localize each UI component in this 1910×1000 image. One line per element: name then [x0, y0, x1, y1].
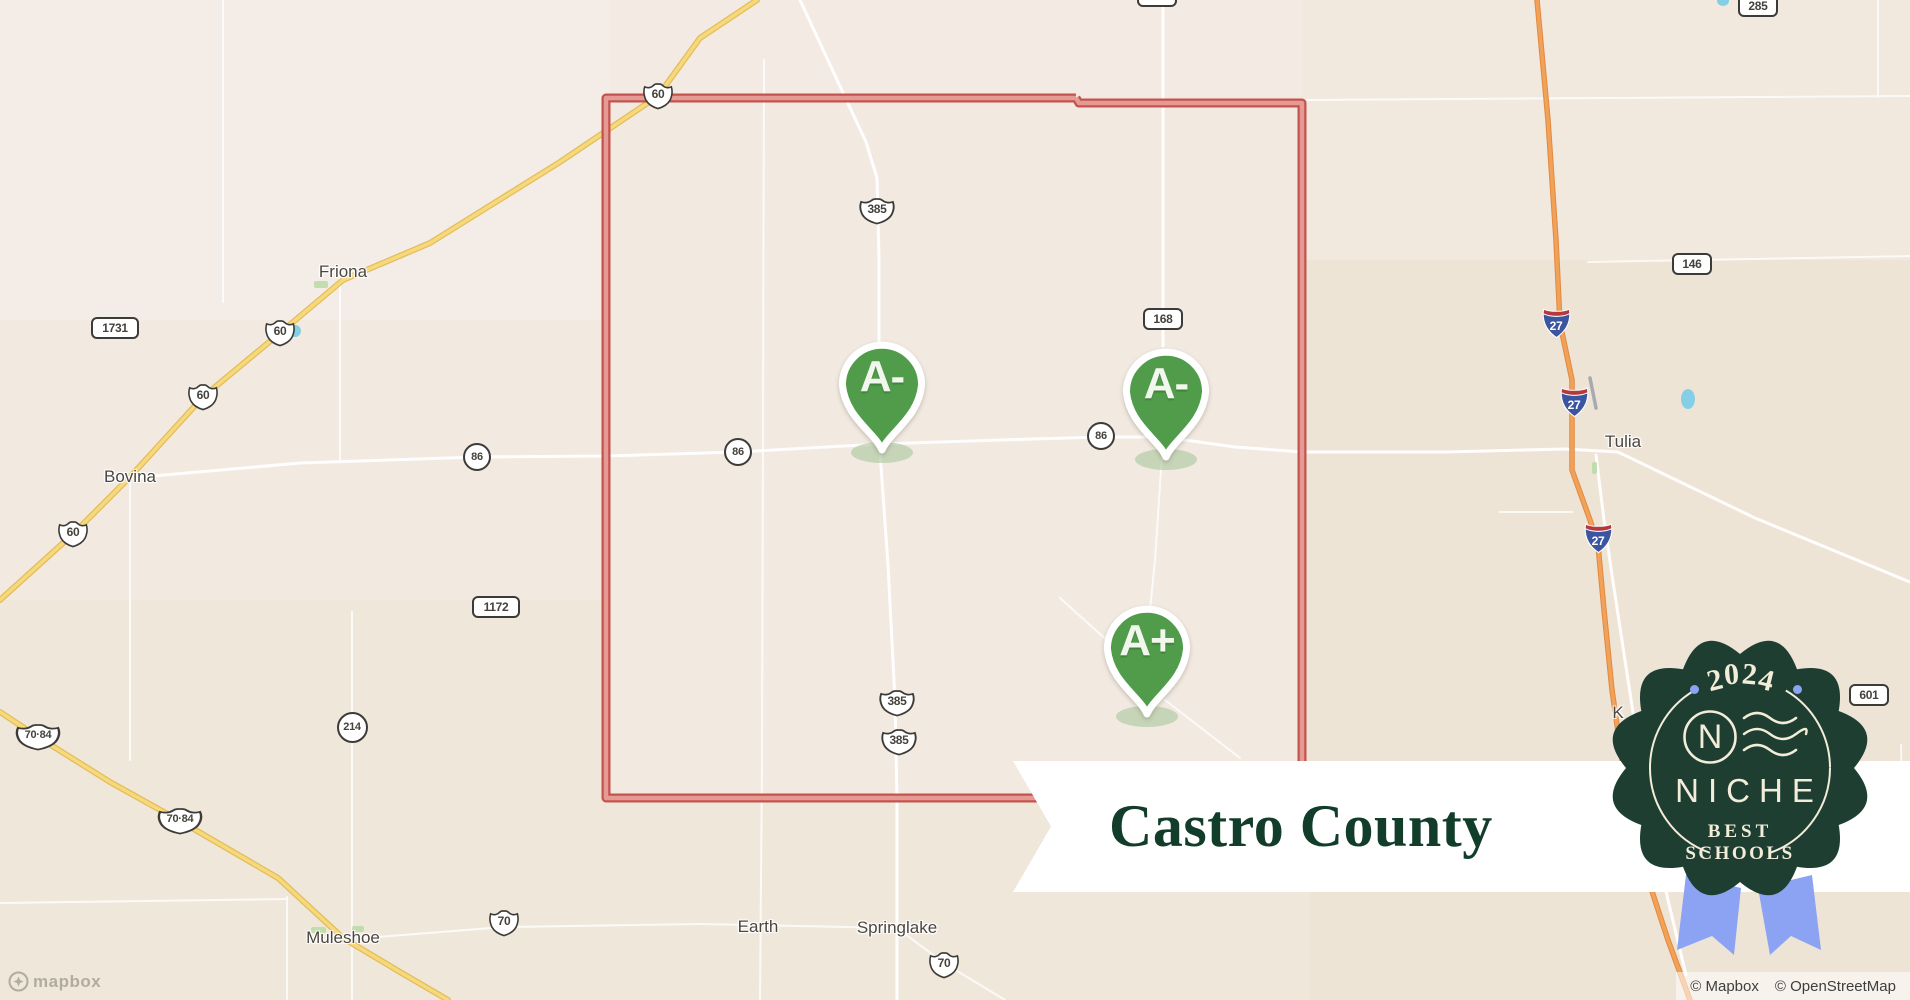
county-banner-title: Castro County	[1109, 792, 1493, 861]
farm-road-shield: 285	[1738, 0, 1779, 17]
school-grade-marker[interactable]: A+	[1096, 596, 1198, 722]
marker-grade-label: A-	[1115, 359, 1217, 409]
route-number: 60	[57, 520, 89, 548]
town-name: Earth	[738, 917, 779, 936]
us-route-shield: 60	[642, 82, 674, 110]
us-route-shield: 385	[878, 689, 916, 717]
badge-year-digit: 0	[1722, 657, 1740, 692]
attribution-openstreetmap[interactable]: © OpenStreetMap	[1775, 978, 1896, 995]
us-route-shield: 60	[187, 383, 219, 411]
badge-dot-right	[1793, 685, 1802, 694]
us-route-shield: 385	[880, 728, 918, 756]
interstate-shield: 27	[1583, 522, 1614, 554]
mapbox-logo-icon	[8, 971, 29, 992]
route-number: 1731	[93, 319, 138, 337]
badge-subtitle-line2: SCHOOLS	[1580, 843, 1900, 865]
route-number: 60	[264, 319, 296, 347]
farm-road-shield: 1172	[472, 596, 521, 618]
farm-road-shield: 1731	[91, 317, 140, 339]
route-number: 168	[1139, 0, 1176, 5]
town-name: Muleshoe	[306, 928, 380, 947]
us-route-shield: 60	[57, 520, 89, 548]
niche-n-letter: N	[1698, 718, 1723, 756]
route-number: 86	[726, 440, 750, 464]
us-route-shield: 385	[858, 197, 896, 225]
badge-year-digit: 2	[1740, 657, 1758, 692]
attribution-mapbox[interactable]: © Mapbox	[1690, 978, 1759, 995]
route-number: 385	[880, 728, 918, 756]
town-label: Bovina	[104, 467, 156, 487]
town-label: Muleshoe	[306, 928, 380, 948]
school-grade-marker[interactable]: A-	[1115, 339, 1217, 465]
route-number: 27	[1559, 386, 1590, 418]
farm-road-shield: 146	[1672, 253, 1713, 275]
town-name: Friona	[319, 262, 367, 281]
route-number: 385	[858, 197, 896, 225]
marker-grade-label: A-	[831, 352, 933, 402]
town-name: Tulia	[1605, 432, 1641, 451]
school-grade-marker[interactable]: A-	[831, 332, 933, 458]
route-number: 1172	[474, 598, 519, 616]
farm-road-shield: 168	[1143, 308, 1184, 330]
route-number: 70	[488, 909, 520, 937]
town-name: Springlake	[857, 918, 937, 937]
badge-year: 2024	[1580, 658, 1900, 692]
route-number: 27	[1541, 307, 1572, 339]
route-number: 214	[339, 714, 366, 741]
farm-road-shield: 168	[1137, 0, 1178, 7]
route-number: 285	[1740, 0, 1777, 15]
mapbox-logo[interactable]: mapbox	[8, 971, 101, 992]
route-number: 385	[878, 689, 916, 717]
town-label: Earth	[738, 917, 779, 937]
state-loop-shield: 86	[1087, 422, 1115, 450]
interstate-shield: 27	[1559, 386, 1590, 418]
us-route-shield: 70·84	[14, 723, 62, 751]
us-route-shield: 70·84	[156, 807, 204, 835]
town-label: Tulia	[1605, 432, 1641, 452]
badge-dot-left	[1690, 685, 1699, 694]
town-label: Springlake	[857, 918, 937, 938]
route-number: 146	[1674, 255, 1711, 273]
us-route-shield: 70	[488, 909, 520, 937]
route-number: 27	[1583, 522, 1614, 554]
route-number: 60	[642, 82, 674, 110]
map-viewport[interactable]: 60 60 60 60 70·84 70·84 385 385	[0, 0, 1910, 1000]
state-loop-shield: 86	[724, 438, 752, 466]
route-number: 86	[465, 445, 489, 469]
state-loop-shield: 86	[463, 443, 491, 471]
us-route-shield: 70	[928, 951, 960, 979]
town-label: Friona	[319, 262, 367, 282]
route-number: 70	[928, 951, 960, 979]
mapbox-logo-text: mapbox	[33, 972, 101, 992]
badge-brand: NICHE	[1580, 772, 1909, 810]
niche-best-schools-badge: N 2024 NICHE BEST SCHOOLS	[1580, 600, 1900, 1000]
marker-grade-label: A+	[1096, 616, 1198, 666]
route-number: 60	[187, 383, 219, 411]
badge-subtitle-line1: BEST	[1580, 821, 1900, 843]
interstate-shield: 27	[1541, 307, 1572, 339]
attribution-bar: © Mapbox © OpenStreetMap	[1676, 972, 1910, 1000]
route-number: 70·84	[14, 723, 62, 751]
town-name: Bovina	[104, 467, 156, 486]
route-number: 168	[1145, 310, 1182, 328]
state-loop-shield: 214	[337, 712, 368, 743]
route-number: 86	[1089, 424, 1113, 448]
route-number: 70·84	[156, 807, 204, 835]
us-route-shield: 60	[264, 319, 296, 347]
